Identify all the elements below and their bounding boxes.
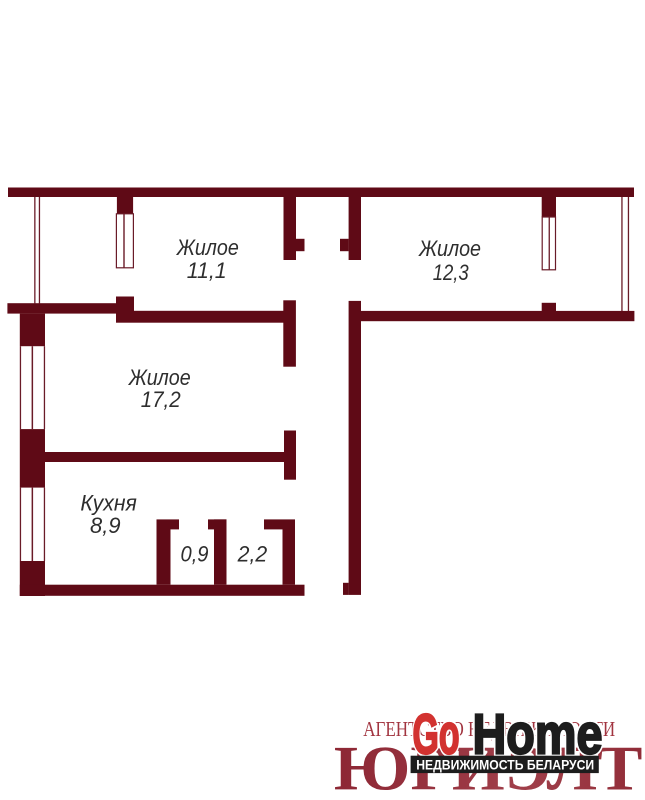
svg-text:8,9: 8,9: [90, 513, 121, 538]
svg-text:НЕДВИЖИМОСТЬ БЕЛАРУСИ: НЕДВИЖИМОСТЬ БЕЛАРУСИ: [416, 758, 594, 773]
svg-text:17,2: 17,2: [141, 387, 181, 412]
svg-text:11,1: 11,1: [187, 258, 227, 283]
svg-text:Кухня: Кухня: [80, 491, 137, 516]
svg-text:Жилое: Жилое: [176, 235, 239, 260]
svg-text:2,2: 2,2: [237, 542, 267, 567]
svg-text:12,3: 12,3: [433, 260, 470, 285]
svg-text:Жилое: Жилое: [418, 236, 481, 261]
svg-text:0,9: 0,9: [181, 542, 209, 567]
